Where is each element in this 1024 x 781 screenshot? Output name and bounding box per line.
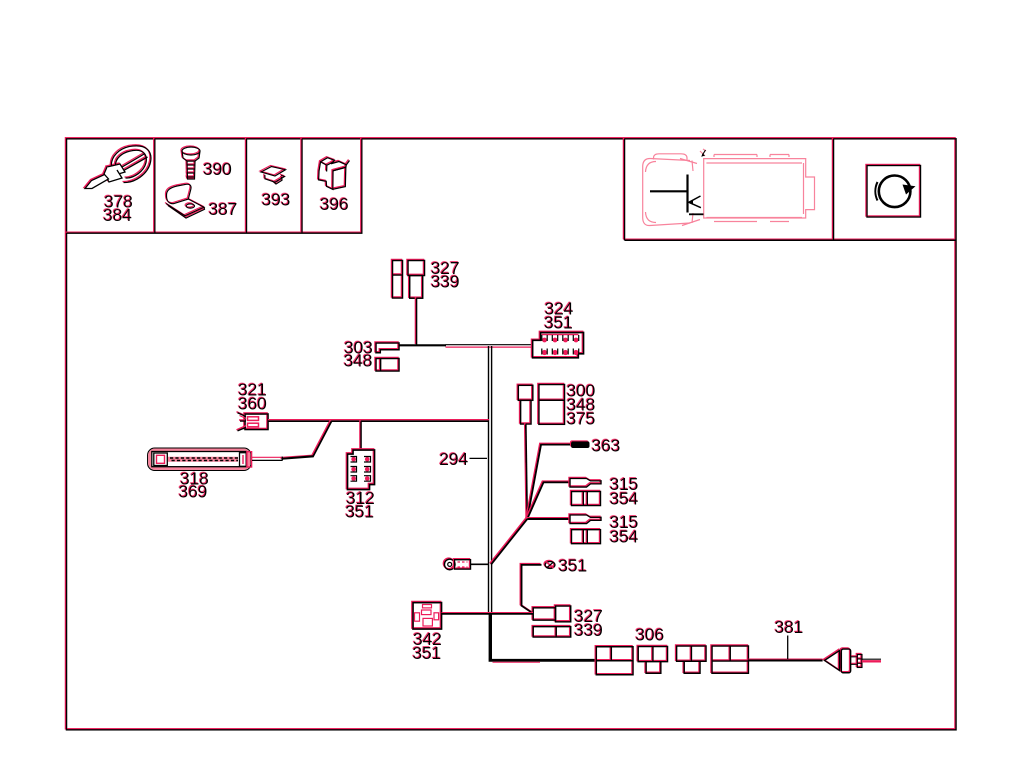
svg-text:387: 387 xyxy=(209,199,238,219)
svg-text:390: 390 xyxy=(203,159,232,179)
svg-text:294: 294 xyxy=(439,449,468,469)
svg-text:354: 354 xyxy=(610,488,639,508)
svg-text:351: 351 xyxy=(558,555,587,575)
svg-text:354: 354 xyxy=(610,527,639,547)
svg-text:381: 381 xyxy=(775,617,804,637)
svg-text:396: 396 xyxy=(320,194,349,214)
svg-text:360: 360 xyxy=(238,394,267,414)
svg-text:393: 393 xyxy=(262,190,291,210)
svg-text:348: 348 xyxy=(344,351,373,371)
svg-text:384: 384 xyxy=(103,205,132,225)
svg-text:375: 375 xyxy=(567,408,596,428)
svg-text:351: 351 xyxy=(412,643,441,663)
svg-text:339: 339 xyxy=(574,620,603,640)
svg-text:339: 339 xyxy=(431,272,460,292)
svg-text:351: 351 xyxy=(345,502,374,522)
svg-text:369: 369 xyxy=(179,481,208,501)
svg-text:351: 351 xyxy=(544,313,573,333)
svg-text:363: 363 xyxy=(592,436,621,456)
svg-text:306: 306 xyxy=(635,625,664,645)
